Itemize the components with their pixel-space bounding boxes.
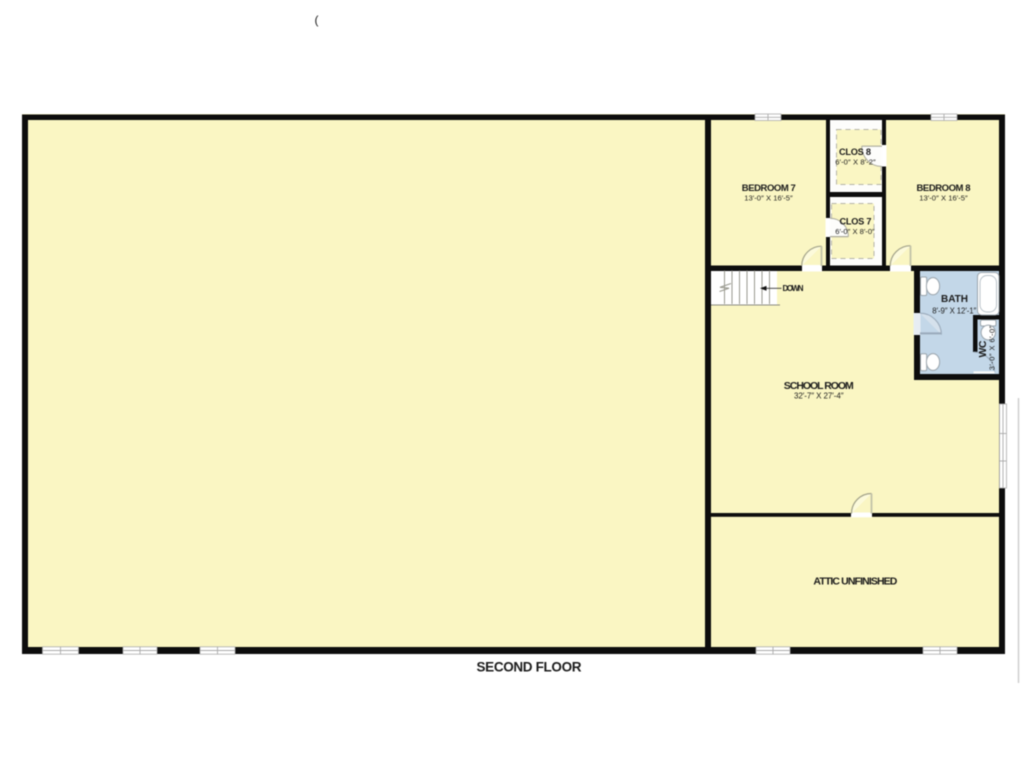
svg-text:CLOS 8: CLOS 8 <box>839 147 871 157</box>
svg-text:DOWN: DOWN <box>783 284 804 293</box>
svg-text:8′-9″ X 12′-1″: 8′-9″ X 12′-1″ <box>932 307 976 316</box>
svg-text:6′-0″ X 8′-0″: 6′-0″ X 8′-0″ <box>835 227 875 236</box>
svg-text:CLOS 7: CLOS 7 <box>840 217 872 227</box>
svg-text:13′-0″ X 16′-5″: 13′-0″ X 16′-5″ <box>744 193 793 202</box>
svg-text:13′-0″ X 16′-5″: 13′-0″ X 16′-5″ <box>919 193 968 202</box>
svg-text:SCHOOL ROOM: SCHOOL ROOM <box>784 380 854 392</box>
svg-text:BATH: BATH <box>941 294 968 305</box>
svg-text:32′-7″ X 27′-4″: 32′-7″ X 27′-4″ <box>794 391 844 400</box>
svg-text:6′-0″ X 8′-2″: 6′-0″ X 8′-2″ <box>835 158 876 167</box>
svg-text:SECOND FLOOR: SECOND FLOOR <box>477 660 582 675</box>
svg-text:ATTIC UNFINISHED: ATTIC UNFINISHED <box>813 576 897 588</box>
svg-text:3′-0″ X 6′-0″: 3′-0″ X 6′-0″ <box>988 325 997 370</box>
svg-text:(: ( <box>315 13 319 27</box>
